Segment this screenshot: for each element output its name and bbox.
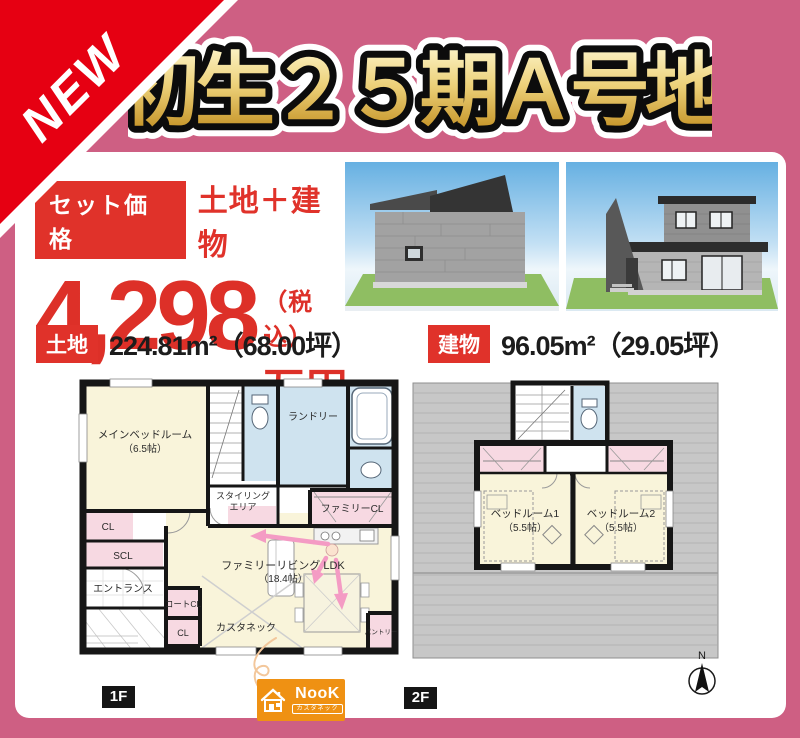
building-tag: 建物 [428, 325, 490, 363]
label-bedroom2-size: （5.5帖） [599, 521, 643, 534]
label-bedroom2: ベッドルーム2 [587, 508, 656, 520]
label-styling-1: スタイリング [216, 490, 270, 501]
building-area-row: 建物 96.05m²（29.05坪） [428, 324, 735, 363]
compass-north-label: N [698, 650, 706, 662]
label-family-closet: ファミリーCL [321, 504, 384, 515]
label-main-bedroom-size: （6.5帖） [123, 442, 167, 455]
brand-logo: NooK カスタネック [257, 679, 345, 721]
label-custom-space: カスタネック [216, 622, 276, 634]
label-pantry: パントリー [365, 628, 398, 636]
flyer-page: 初生２５期Ａ号地 初生２５期Ａ号地 初生２５期Ａ号地 NEW セット価格 土地＋… [0, 0, 800, 738]
label-main-bedroom: メインベッドルーム [98, 429, 192, 441]
land-area-value: 224.81m²（68.00坪） [109, 324, 357, 363]
label-shoes-closet: SCL [113, 551, 133, 562]
land-area-row: 土地 224.81m²（68.00坪） [36, 324, 357, 363]
label-coat-closet: コートCL [165, 599, 202, 609]
new-ribbon: NEW [0, 0, 240, 240]
label-bedroom1: ベッドルーム1 [491, 508, 560, 520]
label-closet-a: CL [102, 522, 115, 533]
label-bedroom1-size: （5.5帖） [503, 521, 547, 534]
hall-2f [545, 445, 607, 473]
house-icon [259, 687, 287, 713]
house-render-front-view [566, 162, 778, 311]
floor-label-2f: 2F [404, 687, 437, 709]
floorplan-1f: メインベッドルーム （6.5帖） ランドリー スタイリング エリア ファミリーC… [78, 378, 400, 668]
compass-needle [695, 663, 709, 692]
land-tag: 土地 [36, 325, 98, 363]
label-entrance: エントランス [93, 583, 153, 595]
label-living: ファミリーリビング LDK [221, 558, 345, 572]
ground-edge [345, 306, 559, 311]
logo-brand-text: NooK [295, 686, 340, 702]
label-living-size: （18.4帖） [258, 572, 307, 585]
room-laundry [278, 383, 348, 486]
north-compass: N [686, 648, 718, 704]
house-render-side-view [345, 162, 559, 311]
plan2f-bedrooms: ベッドルーム1 （5.5帖） ベッドルーム2 （5.5帖） [474, 443, 673, 571]
floorplan-2f: ベッドルーム1 （5.5帖） ベッドルーム2 （5.5帖） [405, 373, 725, 673]
logo-sub-text: カスタネック [292, 704, 342, 714]
label-closet-b: CL [177, 628, 189, 638]
label-laundry: ランドリー [288, 411, 338, 423]
floor-label-1f: 1F [102, 686, 135, 708]
building-area-value: 96.05m²（29.05坪） [501, 324, 735, 363]
label-styling-2: エリア [229, 502, 256, 512]
